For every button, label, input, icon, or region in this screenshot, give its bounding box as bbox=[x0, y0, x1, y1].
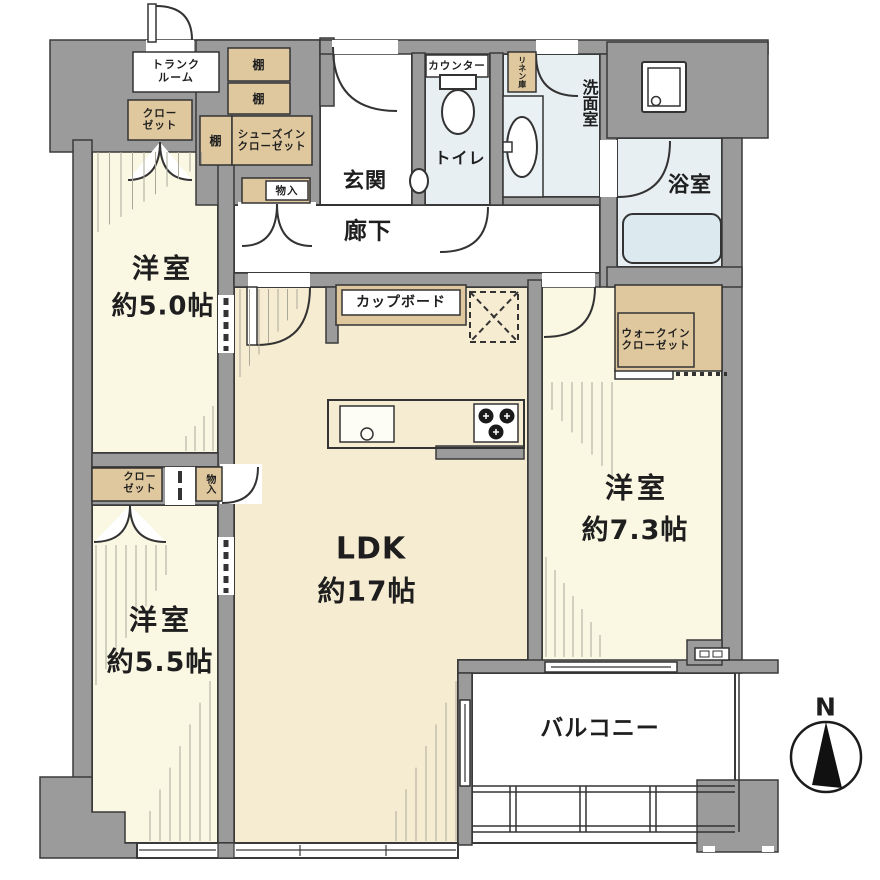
compass bbox=[791, 722, 861, 792]
room-west-5-5-area: 約5.5帖 bbox=[107, 647, 214, 679]
cupboard-label: カップボード bbox=[356, 295, 446, 312]
storage-label: 物入 bbox=[203, 474, 215, 494]
shelf-label: 棚 bbox=[209, 134, 222, 148]
floor-plan: トランクルーム 棚 棚 棚 シューズインクローゼット クローゼット 物入 カウン… bbox=[0, 0, 880, 880]
room-ldk-name: LDK bbox=[336, 531, 406, 566]
hallway-label: 廊下 bbox=[344, 218, 392, 245]
ldk-window-band bbox=[137, 843, 458, 858]
room-west-5-5-name: 洋室 bbox=[129, 603, 193, 636]
shoes-in-closet-label: シューズインクローゼット bbox=[238, 129, 307, 154]
storage-label: 物入 bbox=[276, 185, 299, 197]
toilet-label: トイレ bbox=[434, 150, 485, 169]
faucet bbox=[503, 142, 512, 152]
room-west-5-0-name: 洋室 bbox=[132, 254, 194, 286]
room-west-5-0-area: 約5.0帖 bbox=[111, 292, 214, 323]
counter-label: カウンター bbox=[428, 60, 486, 72]
closet-label: クローゼット bbox=[143, 108, 178, 133]
walk-in-closet-label: ウォークインクローゼット bbox=[622, 328, 691, 353]
washroom-label: 洗面室 bbox=[579, 79, 598, 127]
bathroom-label: 浴室 bbox=[668, 173, 712, 198]
room-ldk-area: 約17帖 bbox=[318, 574, 417, 607]
door-leaf bbox=[247, 287, 257, 345]
room-west-7-3-area: 約7.3帖 bbox=[582, 515, 689, 547]
room-west-7-3-name: 洋室 bbox=[605, 471, 669, 504]
floor-plan-drawing bbox=[0, 0, 880, 880]
compass-north-label: N bbox=[815, 692, 837, 722]
bathtub bbox=[623, 214, 721, 263]
shelf-label: 棚 bbox=[252, 92, 265, 106]
toilet-hand-basin bbox=[410, 169, 428, 193]
toilet-bowl bbox=[442, 90, 474, 134]
balcony-label: バルコニー bbox=[540, 715, 660, 742]
balcony-utility-box bbox=[697, 780, 778, 852]
balcony-floor bbox=[472, 673, 735, 843]
shelf-label: 棚 bbox=[252, 58, 265, 72]
door-arc bbox=[156, 6, 192, 40]
kitchen-sink bbox=[340, 406, 394, 442]
drain bbox=[652, 97, 661, 106]
linen-label: リネン庫 bbox=[517, 56, 526, 88]
closet-label: クローゼット bbox=[124, 472, 157, 496]
trunk-room-label: トランクルーム bbox=[152, 59, 200, 85]
toilet-tank bbox=[440, 75, 476, 89]
door-leaf bbox=[148, 4, 156, 42]
entrance-label: 玄関 bbox=[343, 169, 387, 194]
